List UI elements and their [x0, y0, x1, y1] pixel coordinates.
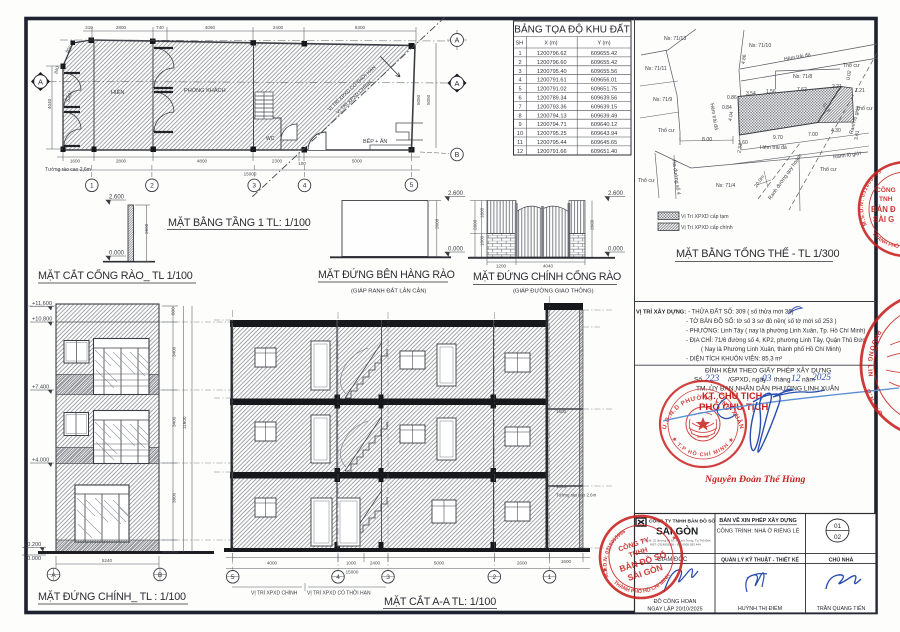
svg-text:4040: 4040: [47, 98, 52, 109]
svg-text:8: 8: [518, 113, 521, 119]
svg-text:1200791.61: 1200791.61: [537, 78, 567, 84]
svg-text:01: 01: [834, 523, 842, 530]
svg-text:5: 5: [518, 87, 521, 93]
svg-text:7: 7: [518, 104, 521, 110]
svg-text:HIÊN: HIÊN: [111, 88, 124, 96]
svg-text:310: 310: [85, 25, 93, 30]
svg-text:Ns: 71/13: Ns: 71/13: [664, 36, 686, 42]
svg-text:3: 3: [518, 69, 521, 75]
svg-text:±0.000: ±0.000: [24, 556, 41, 562]
svg-text:2800: 2800: [116, 25, 127, 30]
svg-text:CHỦ NHÀ: CHỦ NHÀ: [829, 556, 854, 563]
svg-text:609651.75: 609651.75: [591, 87, 617, 93]
svg-text:A: A: [455, 38, 460, 45]
svg-text:1600: 1600: [561, 559, 572, 564]
svg-text:609643.94: 609643.94: [591, 131, 617, 137]
svg-text:2: 2: [492, 574, 496, 581]
svg-text:1600: 1600: [480, 207, 485, 218]
svg-text:4.30: 4.30: [831, 128, 841, 134]
svg-text:MẶT CẮT CỔNG RÀO_ TL 1/100: MẶT CẮT CỔNG RÀO_ TL 1/100: [38, 269, 193, 282]
svg-text:5000: 5000: [352, 159, 363, 164]
svg-text:2600: 2600: [517, 561, 528, 566]
svg-text:NGÀY LẬP 20/10/2025: NGÀY LẬP 20/10/2025: [647, 606, 702, 613]
svg-text:- TỜ BẢN ĐỒ SỐ: tờ số 3 sơ đồ: - TỜ BẢN ĐỒ SỐ: tờ số 3 sơ đồ nền( số tờ…: [686, 318, 837, 325]
svg-text:MST: 0318055956 - ĐT: 0909 555: MST: 0318055956 - ĐT: 0909 555 444: [650, 543, 701, 547]
svg-text:VỊ TRÍ XPXD CÓ THỜI HẠN: VỊ TRÍ XPXD CÓ THỜI HẠN: [307, 590, 371, 597]
svg-text:B: B: [455, 152, 460, 159]
svg-text:0.84: 0.84: [722, 105, 732, 111]
svg-text:3: 3: [386, 574, 390, 581]
svg-text:1000: 1000: [346, 561, 357, 566]
svg-text:MẶT BẰNG TẦNG 1 TL: 1/100: MẶT BẰNG TẦNG 1 TL: 1/100: [168, 216, 311, 229]
svg-text:WC: WC: [266, 136, 275, 142]
svg-text:1200789.34: 1200789.34: [537, 96, 567, 102]
svg-text:Ns: 71/11: Ns: 71/11: [645, 66, 667, 72]
svg-text:CÔNG TRÌNH: NHÀ Ở RIÊNG LẺ: CÔNG TRÌNH: NHÀ Ở RIÊNG LẺ: [717, 527, 800, 535]
svg-text:0.000: 0.000: [608, 247, 624, 253]
svg-text:MẶT ĐỨNG CHÍNH_ TL : 1/100: MẶT ĐỨNG CHÍNH_ TL : 1/100: [38, 590, 186, 603]
svg-text:9.70: 9.70: [773, 135, 783, 141]
svg-text:1: 1: [90, 183, 94, 190]
svg-text:1200794.13: 1200794.13: [537, 113, 567, 119]
svg-text:1200795.25: 1200795.25: [537, 131, 567, 137]
svg-text:- THỬA ĐẤT SỐ: 309 ( số thửa: - THỬA ĐẤT SỐ: 309 ( số thửa mới 36): [688, 309, 794, 316]
svg-text:Tường rào cao 2,6m: Tường rào cao 2,6m: [45, 167, 91, 173]
svg-text:BẢNG TỌA ĐỘ KHU ĐẤT: BẢNG TỌA ĐỘ KHU ĐẤT: [514, 23, 629, 36]
svg-text:9: 9: [518, 122, 521, 128]
svg-text:Vị Trí XPXD cấp tạm: Vị Trí XPXD cấp tạm: [681, 214, 729, 220]
svg-text:609655.42: 609655.42: [591, 51, 617, 57]
svg-text:1000: 1000: [480, 235, 485, 246]
svg-text:VỊ TRÍ XPXD CHÍNH: VỊ TRÍ XPXD CHÍNH: [251, 590, 298, 597]
svg-text:MẶT CẮT A-A TL: 1/100: MẶT CẮT A-A TL: 1/100: [384, 595, 496, 608]
svg-text:1: 1: [518, 51, 521, 57]
svg-text:(GIÁP RANH ĐẤT LÂN CẬN): (GIÁP RANH ĐẤT LÂN CẬN): [351, 288, 427, 295]
svg-text:800: 800: [171, 307, 176, 315]
svg-text:12: 12: [517, 149, 523, 155]
svg-text:2025: 2025: [812, 373, 831, 383]
svg-text:HUỲNH THỊ ĐIỂM: HUỲNH THỊ ĐIỂM: [738, 605, 783, 612]
svg-text:PHÒNG KHÁCH: PHÒNG KHÁCH: [184, 87, 226, 94]
svg-text:609639.49: 609639.49: [591, 113, 617, 119]
svg-text:1200791.02: 1200791.02: [537, 87, 567, 93]
svg-text:Thổ cư: Thổ cư: [843, 62, 860, 69]
svg-text:SÀI G: SÀI G: [873, 215, 894, 224]
svg-text:A: A: [51, 572, 56, 579]
svg-text:609645.65: 609645.65: [591, 140, 617, 146]
svg-text:15000: 15000: [244, 172, 257, 177]
svg-text:4: 4: [518, 78, 521, 84]
svg-text:2.600: 2.600: [448, 191, 464, 197]
svg-text:740: 740: [156, 25, 164, 30]
svg-text:+7.400: +7.400: [32, 385, 49, 391]
svg-text:Ns: 71/10: Ns: 71/10: [749, 43, 771, 49]
svg-text:5: 5: [231, 574, 235, 581]
svg-text:2600: 2600: [473, 219, 478, 230]
svg-text:03: 03: [762, 374, 772, 384]
svg-text:1200794.71: 1200794.71: [537, 122, 567, 128]
svg-text:5050: 5050: [426, 94, 431, 105]
svg-text:BẢN Đ: BẢN Đ: [871, 205, 896, 214]
svg-text:2.600: 2.600: [608, 191, 624, 197]
svg-text:3: 3: [252, 183, 256, 190]
svg-text:1200796.62: 1200796.62: [537, 51, 567, 57]
svg-text:3400: 3400: [172, 346, 177, 357]
svg-text:5300: 5300: [355, 25, 366, 30]
svg-text:2600: 2600: [144, 223, 149, 234]
svg-text:609651.40: 609651.40: [591, 149, 617, 155]
svg-text:2800: 2800: [116, 159, 127, 164]
svg-text:6: 6: [518, 96, 521, 102]
svg-text:2400: 2400: [370, 561, 381, 566]
svg-text:7.00: 7.00: [808, 132, 818, 138]
svg-text:- PHƯỜNG: Linh Tây ( nay là p: - PHƯỜNG: Linh Tây ( nay là phường Linh …: [686, 328, 865, 335]
svg-text:11: 11: [517, 140, 523, 146]
svg-text:BẢN VẼ XIN PHÉP XÂY DỰNG: BẢN VẼ XIN PHÉP XÂY DỰNG: [719, 516, 796, 524]
svg-text:Vị Trí XPXD cấp chính: Vị Trí XPXD cấp chính: [681, 225, 733, 231]
svg-text:7.62: 7.62: [797, 87, 807, 93]
svg-text:02: 02: [834, 534, 842, 541]
svg-text:5240: 5240: [102, 558, 113, 563]
svg-text:Thổ cư: Thổ cư: [658, 127, 675, 134]
svg-text:(GIÁP ĐƯỜNG GIAO THÔNG): (GIÁP ĐƯỜNG GIAO THÔNG): [513, 288, 594, 295]
svg-text:1200795.40: 1200795.40: [537, 69, 567, 75]
svg-text:ĐỖ CÔNG HOAN: ĐỖ CÔNG HOAN: [654, 598, 697, 605]
svg-text:Ns: 71/4: Ns: 71/4: [716, 183, 735, 189]
svg-text:1600: 1600: [70, 159, 81, 164]
svg-text:- DIỆN TÍCH KHUÔN VIÊN: 85.3 m: - DIỆN TÍCH KHUÔN VIÊN: 85.3 m²: [686, 355, 782, 363]
svg-text:1600: 1600: [556, 484, 567, 489]
svg-text:1200793.36: 1200793.36: [537, 104, 567, 110]
svg-text:VỊ TRÍ XÂY DỰNG:: VỊ TRÍ XÂY DỰNG:: [636, 308, 686, 316]
svg-text:0.000: 0.000: [448, 247, 464, 253]
svg-text:Hẻm trải đá: Hẻm trải đá: [760, 145, 787, 151]
svg-text:609639.15: 609639.15: [591, 104, 617, 110]
svg-text:609640.12: 609640.12: [591, 122, 617, 128]
svg-text:SH: SH: [516, 41, 524, 47]
svg-text:5: 5: [410, 182, 414, 189]
svg-text:1.21: 1.21: [855, 88, 865, 94]
svg-text:2300: 2300: [272, 159, 283, 164]
svg-text:BẾP + ĂN: BẾP + ĂN: [363, 138, 387, 145]
svg-text:+0.200: +0.200: [24, 542, 41, 548]
svg-text:A: A: [454, 79, 459, 88]
svg-text:Thổ cư: Thổ cư: [638, 177, 655, 184]
svg-text:MẶT BẰNG TỔNG THỂ - TL 1/300: MẶT BẰNG TỔNG THỂ - TL 1/300: [676, 247, 840, 260]
svg-text:QUẢN LÝ KỸ THUẬT - THIẾT KẾ: QUẢN LÝ KỸ THUẬT - THIẾT KẾ: [721, 556, 799, 563]
svg-text:5050: 5050: [416, 94, 421, 105]
svg-text:10: 10: [517, 131, 523, 137]
svg-text:1200796.60: 1200796.60: [537, 60, 567, 66]
svg-text:2.600: 2.600: [109, 195, 125, 201]
svg-text:A: A: [38, 77, 43, 86]
svg-text:1200791.66: 1200791.66: [537, 149, 567, 155]
svg-text:12: 12: [791, 374, 801, 384]
svg-text:2.21: 2.21: [832, 84, 842, 90]
svg-text:4040: 4040: [543, 264, 554, 269]
svg-text:2600: 2600: [435, 218, 440, 229]
svg-text:TNH: TNH: [879, 196, 893, 203]
svg-text:609656.01: 609656.01: [591, 78, 617, 84]
svg-text:8.00: 8.00: [702, 137, 712, 143]
svg-text:Y (m): Y (m): [597, 41, 610, 47]
svg-text:Nguyễn Đoàn Thế Hùng: Nguyễn Đoàn Thế Hùng: [704, 474, 806, 485]
svg-text:TRẦN QUANG TIẾN: TRẦN QUANG TIẾN: [817, 605, 866, 612]
svg-text:4800: 4800: [197, 159, 208, 164]
svg-text:1.56: 1.56: [766, 89, 776, 95]
svg-text:1600: 1600: [556, 409, 567, 414]
svg-text:4000: 4000: [267, 561, 278, 566]
svg-text:0.000: 0.000: [109, 251, 125, 257]
svg-text:+10.800: +10.800: [32, 317, 52, 323]
svg-text:Ns: 71/8: Ns: 71/8: [793, 74, 812, 80]
svg-text:Thổ cư: Thổ cư: [820, 166, 837, 173]
svg-text:( Nay là Phường Linh Xuân, thà: ( Nay là Phường Linh Xuân, thành phố Hồ …: [701, 347, 841, 353]
svg-text:5000: 5000: [434, 561, 445, 566]
svg-text:11600: 11600: [182, 416, 187, 429]
svg-text:100: 100: [298, 161, 306, 166]
svg-text:- ĐỊA CHỈ: 71/6 đường số 4, K: - ĐỊA CHỈ: 71/6 đường số 4, KP2, phường …: [686, 337, 865, 344]
svg-text:CÔNG: CÔNG: [876, 185, 896, 194]
svg-text:3400: 3400: [172, 416, 177, 427]
svg-text:2400: 2400: [273, 25, 284, 30]
svg-text:3800: 3800: [172, 492, 177, 503]
svg-text:609655.56: 609655.56: [591, 69, 617, 75]
svg-text:609639.56: 609639.56: [591, 96, 617, 102]
svg-text:4: 4: [303, 183, 307, 190]
svg-text:4: 4: [336, 574, 340, 581]
svg-text:1200: 1200: [496, 264, 507, 269]
svg-text:1200795.44: 1200795.44: [537, 140, 567, 146]
svg-text:0.86: 0.86: [727, 95, 737, 101]
svg-text:Tường rào cao 2.6m: Tường rào cao 2.6m: [556, 493, 597, 498]
svg-text:609655.42: 609655.42: [591, 60, 617, 66]
svg-text:Ns: 71/9: Ns: 71/9: [653, 97, 672, 103]
svg-text:2: 2: [150, 183, 154, 190]
svg-text:tháng: tháng: [774, 377, 791, 384]
svg-text:1: 1: [548, 574, 552, 581]
svg-text:4060: 4060: [205, 25, 216, 30]
svg-text:2600: 2600: [590, 219, 595, 230]
svg-text:3.54: 3.54: [746, 91, 756, 97]
svg-text:+4.000: +4.000: [32, 458, 49, 464]
svg-text:MẶT ĐỨNG BÊN HÀNG RÀO: MẶT ĐỨNG BÊN HÀNG RÀO: [318, 268, 455, 281]
svg-text:MẶT ĐỨNG CHÍNH CỔNG RÀO: MẶT ĐỨNG CHÍNH CỔNG RÀO: [473, 270, 621, 283]
svg-text:X (m): X (m): [544, 41, 557, 47]
svg-text:2: 2: [518, 60, 521, 66]
svg-text:15000: 15000: [346, 570, 359, 575]
